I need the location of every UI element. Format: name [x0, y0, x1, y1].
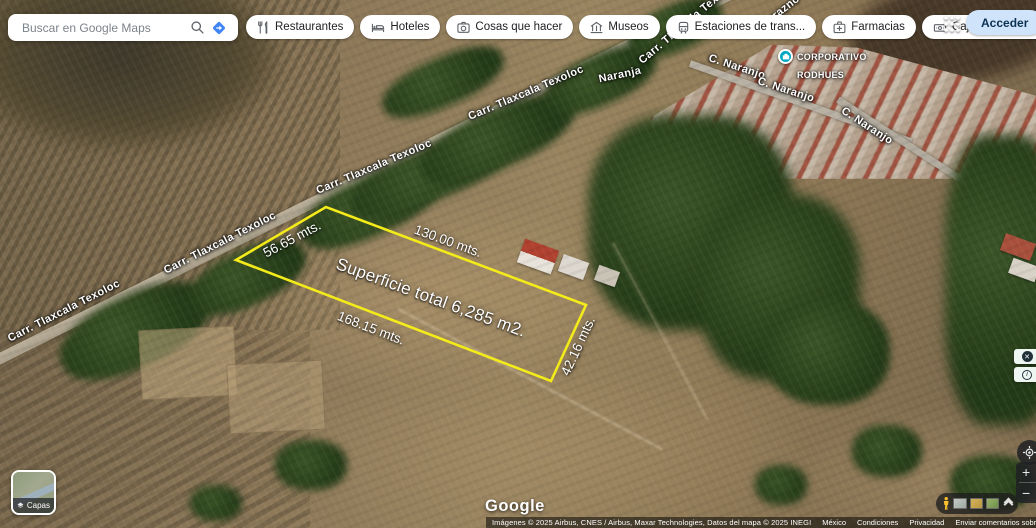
hotel-icon: [371, 21, 385, 34]
chip-farmacias[interactable]: Farmacias: [822, 15, 916, 39]
sign-in-button[interactable]: Acceder: [966, 10, 1036, 35]
poi-name-line2: RODHUES: [797, 70, 844, 80]
chip-label: Estaciones de trans...: [695, 21, 806, 33]
imagery-credits: Imágenes © 2025 Airbus, CNES / Airbus, M…: [492, 518, 811, 527]
chip-label: Farmacias: [851, 21, 905, 33]
zoom-out-button[interactable]: −: [1016, 483, 1036, 503]
layers-label: Capas: [27, 501, 50, 510]
search-icon[interactable]: [186, 17, 208, 39]
chip-label: Cosas que hacer: [475, 21, 562, 33]
poi-corporativo-rodhues[interactable]: CORPORATIVO RODHUES: [778, 47, 867, 83]
directions-icon[interactable]: [208, 17, 230, 39]
chip-label: Museos: [608, 21, 648, 33]
imagery-thumbnail[interactable]: [986, 498, 999, 509]
google-logo[interactable]: Google: [485, 497, 545, 516]
link-mexico[interactable]: México: [822, 518, 846, 527]
poi-name-line1: CORPORATIVO: [797, 52, 867, 62]
poi-business-icon: [778, 49, 793, 64]
chip-hoteles[interactable]: Hoteles: [360, 15, 440, 39]
search-bar[interactable]: [8, 14, 238, 41]
category-chips: Restaurantes Hoteles Cosas que hacer Mus…: [246, 15, 1036, 39]
link-condiciones[interactable]: Condiciones: [857, 518, 898, 527]
museum-icon: [590, 21, 603, 34]
link-privacidad[interactable]: Privacidad: [909, 518, 944, 527]
imagery-thumbnail[interactable]: [970, 498, 983, 509]
zoom-controls: + −: [1016, 462, 1036, 503]
attribution-bar: Imágenes © 2025 Airbus, CNES / Airbus, M…: [486, 517, 1036, 528]
search-input[interactable]: [20, 20, 186, 36]
link-enviar-comentarios[interactable]: Enviar comentarios sobre el producto: [955, 518, 1036, 527]
imagery-bar: [936, 493, 1018, 514]
chip-label: Restaurantes: [275, 21, 343, 33]
info-icon: i: [1022, 370, 1032, 380]
terrain-texture: [0, 0, 1036, 528]
layers-button[interactable]: Capas: [11, 470, 56, 515]
close-icon: ✕: [1022, 351, 1033, 362]
imagery-thumbnail[interactable]: [953, 498, 966, 509]
chip-label: Hoteles: [390, 21, 429, 33]
restaurant-icon: [257, 21, 270, 34]
chip-restaurantes[interactable]: Restaurantes: [246, 15, 354, 39]
overlay-info-button[interactable]: i: [1014, 367, 1036, 382]
google-maps-app: Carr. Tlaxcala Texoloc Carr. Tlaxcala Te…: [0, 0, 1036, 528]
chip-estaciones-de-transporte[interactable]: Estaciones de trans...: [666, 15, 817, 39]
chip-cosas-que-hacer[interactable]: Cosas que hacer: [446, 15, 573, 39]
layers-icon: [17, 501, 24, 510]
chip-museos[interactable]: Museos: [579, 15, 659, 39]
camera-icon: [457, 21, 470, 34]
google-apps-grid-icon[interactable]: [942, 14, 962, 34]
pharmacy-icon: [833, 21, 846, 34]
transit-icon: [677, 21, 690, 34]
zoom-in-button[interactable]: +: [1016, 462, 1036, 482]
pegman-icon[interactable]: [942, 496, 950, 511]
my-location-icon: [1023, 446, 1036, 459]
overlay-close-button[interactable]: ✕: [1014, 349, 1036, 364]
collapse-imagery-chevron-icon[interactable]: [1005, 499, 1012, 508]
